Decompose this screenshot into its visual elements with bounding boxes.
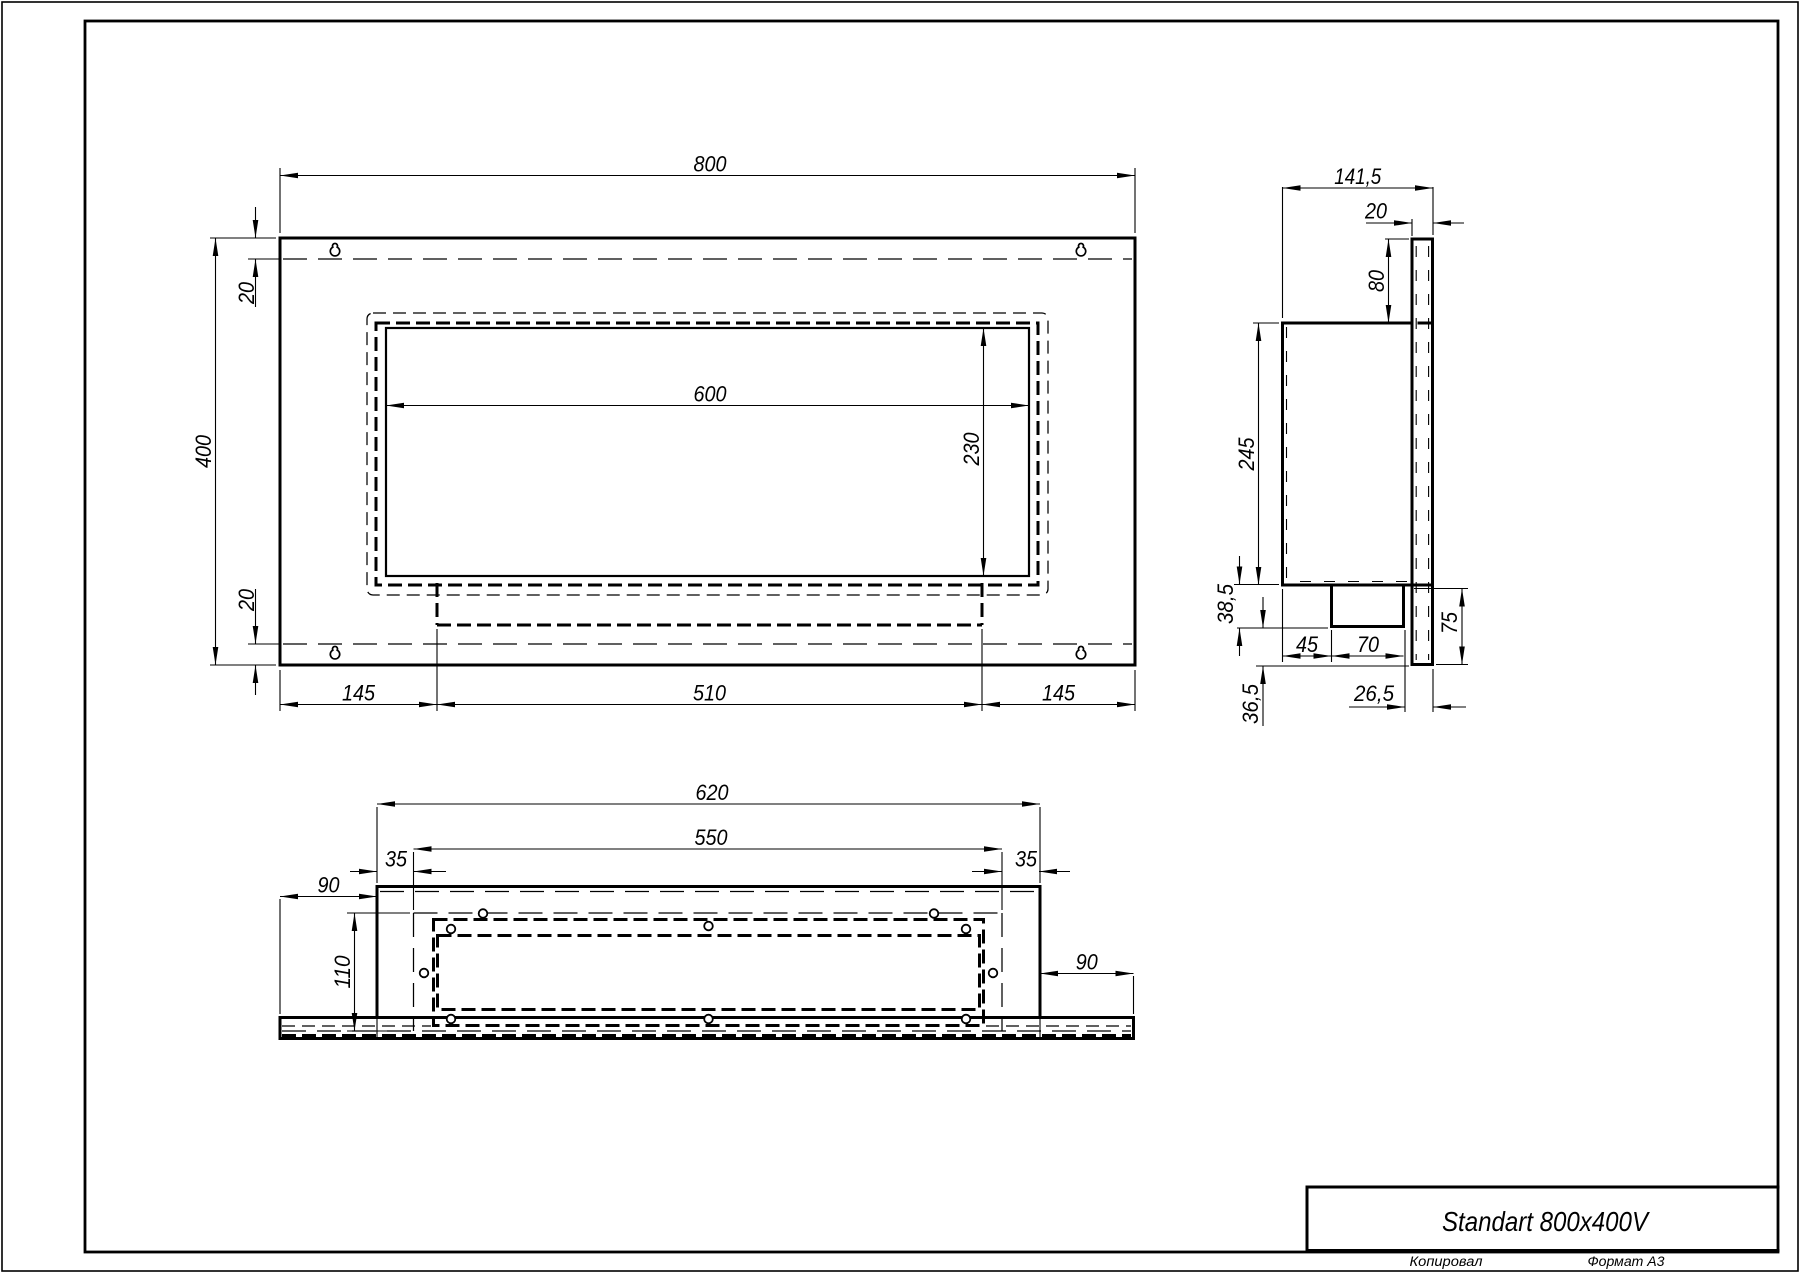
svg-text:20: 20 [234, 588, 259, 612]
svg-text:80: 80 [1364, 269, 1389, 292]
svg-text:20: 20 [1364, 199, 1388, 224]
svg-text:Формат А3: Формат А3 [1588, 1254, 1666, 1269]
svg-text:35: 35 [385, 847, 408, 872]
svg-text:230: 230 [959, 432, 984, 467]
svg-text:245: 245 [1234, 437, 1259, 472]
svg-text:35: 35 [1015, 847, 1038, 872]
svg-text:141,5: 141,5 [1334, 164, 1382, 189]
svg-text:Копировал: Копировал [1410, 1254, 1483, 1269]
svg-text:800: 800 [694, 152, 728, 177]
svg-text:90: 90 [318, 873, 341, 898]
svg-text:Standart 800x400V: Standart 800x400V [1442, 1206, 1650, 1237]
svg-text:20: 20 [234, 281, 259, 305]
svg-text:145: 145 [1042, 681, 1076, 706]
svg-text:38,5: 38,5 [1213, 583, 1238, 624]
svg-text:145: 145 [342, 681, 376, 706]
svg-text:620: 620 [696, 780, 730, 805]
svg-text:400: 400 [191, 434, 216, 468]
svg-text:90: 90 [1076, 950, 1099, 975]
svg-text:45: 45 [1296, 632, 1319, 657]
svg-text:510: 510 [693, 681, 727, 706]
svg-text:70: 70 [1357, 632, 1380, 657]
svg-text:36,5: 36,5 [1238, 683, 1263, 724]
svg-text:110: 110 [330, 955, 355, 989]
svg-text:75: 75 [1437, 611, 1462, 634]
svg-text:550: 550 [695, 825, 729, 850]
svg-text:26,5: 26,5 [1353, 681, 1395, 706]
svg-text:600: 600 [694, 382, 728, 407]
